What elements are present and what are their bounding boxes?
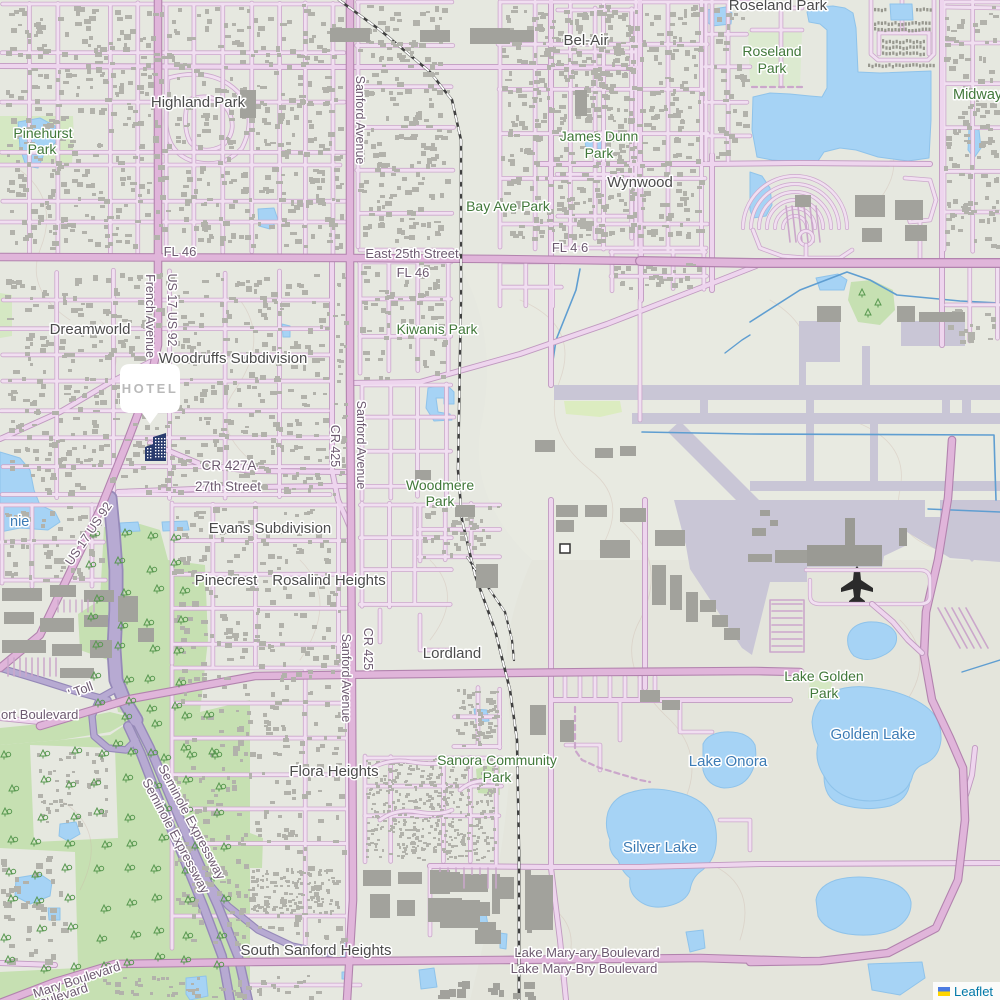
svg-text:Leaflet: Leaflet (954, 984, 993, 999)
svg-text:Midway P: Midway P (953, 87, 1000, 103)
svg-text:Highland Park: Highland Park (151, 94, 246, 111)
svg-text:FL 46: FL 46 (164, 244, 197, 259)
svg-text:Pinehurst: Pinehurst (13, 125, 72, 141)
svg-text:Sanora Community: Sanora Community (437, 752, 557, 768)
svg-text:Lake Golden: Lake Golden (784, 668, 863, 684)
svg-text:Woodmere: Woodmere (406, 477, 474, 493)
svg-text:Park: Park (426, 493, 456, 509)
svg-text:Lordland: Lordland (423, 645, 481, 662)
svg-text:CR 425: CR 425 (328, 425, 342, 467)
svg-text:Woodruffs Subdivision: Woodruffs Subdivision (159, 350, 308, 367)
svg-text:Wynwood: Wynwood (607, 174, 673, 191)
svg-text:Park: Park (810, 685, 840, 701)
svg-text:Lake Mary-ary Boulevard: Lake Mary-ary Boulevard (514, 945, 659, 960)
svg-text:HOTEL: HOTEL (122, 381, 179, 396)
svg-text:Sanford Avenue: Sanford Avenue (353, 76, 367, 165)
svg-text:US 17 US 92: US 17 US 92 (165, 274, 179, 347)
svg-text:French Avenue: French Avenue (143, 274, 157, 358)
svg-text:Kiwanis Park: Kiwanis Park (397, 321, 479, 337)
svg-text:James Dunn: James Dunn (560, 128, 639, 144)
svg-text:CR 427A: CR 427A (202, 458, 257, 473)
svg-text:Evans Subdivision: Evans Subdivision (209, 520, 332, 537)
svg-text:27th Street: 27th Street (195, 479, 261, 494)
svg-text:Park: Park (758, 60, 788, 76)
svg-text:Sanford Avenue: Sanford Avenue (339, 634, 353, 723)
svg-text:Park: Park (483, 769, 513, 785)
svg-text:South Sanford Heights: South Sanford Heights (241, 942, 392, 959)
svg-text:Flora Heights: Flora Heights (289, 763, 378, 780)
svg-text:FL 4 6: FL 4 6 (552, 240, 588, 255)
svg-text:Lake Onora: Lake Onora (689, 753, 768, 770)
svg-text:Bay Ave Park: Bay Ave Park (466, 198, 551, 214)
svg-text:Sanford Avenue: Sanford Avenue (354, 401, 368, 490)
svg-text:East 25th Street: East 25th Street (365, 246, 459, 261)
svg-text:ort Boulevard: ort Boulevard (1, 707, 78, 722)
svg-text:Roseland Park: Roseland Park (729, 0, 828, 14)
svg-text:Silver Lake: Silver Lake (623, 839, 697, 856)
svg-text:Dreamworld: Dreamworld (50, 321, 131, 338)
svg-text:CR 425: CR 425 (361, 628, 375, 670)
svg-text:nie: nie (10, 514, 29, 530)
svg-text:Roseland: Roseland (742, 43, 801, 59)
svg-text:Lake Mary-Bry Boulevard: Lake Mary-Bry Boulevard (511, 961, 658, 976)
svg-text:Park: Park (28, 141, 58, 157)
svg-text:Bel-Air: Bel-Air (563, 32, 608, 49)
svg-text:Park: Park (585, 145, 615, 161)
svg-text:FL 46: FL 46 (397, 265, 430, 280)
svg-text:Rosalind Heights: Rosalind Heights (272, 572, 385, 589)
svg-text:Pinecrest: Pinecrest (195, 572, 258, 589)
svg-text:Golden Lake: Golden Lake (830, 726, 915, 743)
